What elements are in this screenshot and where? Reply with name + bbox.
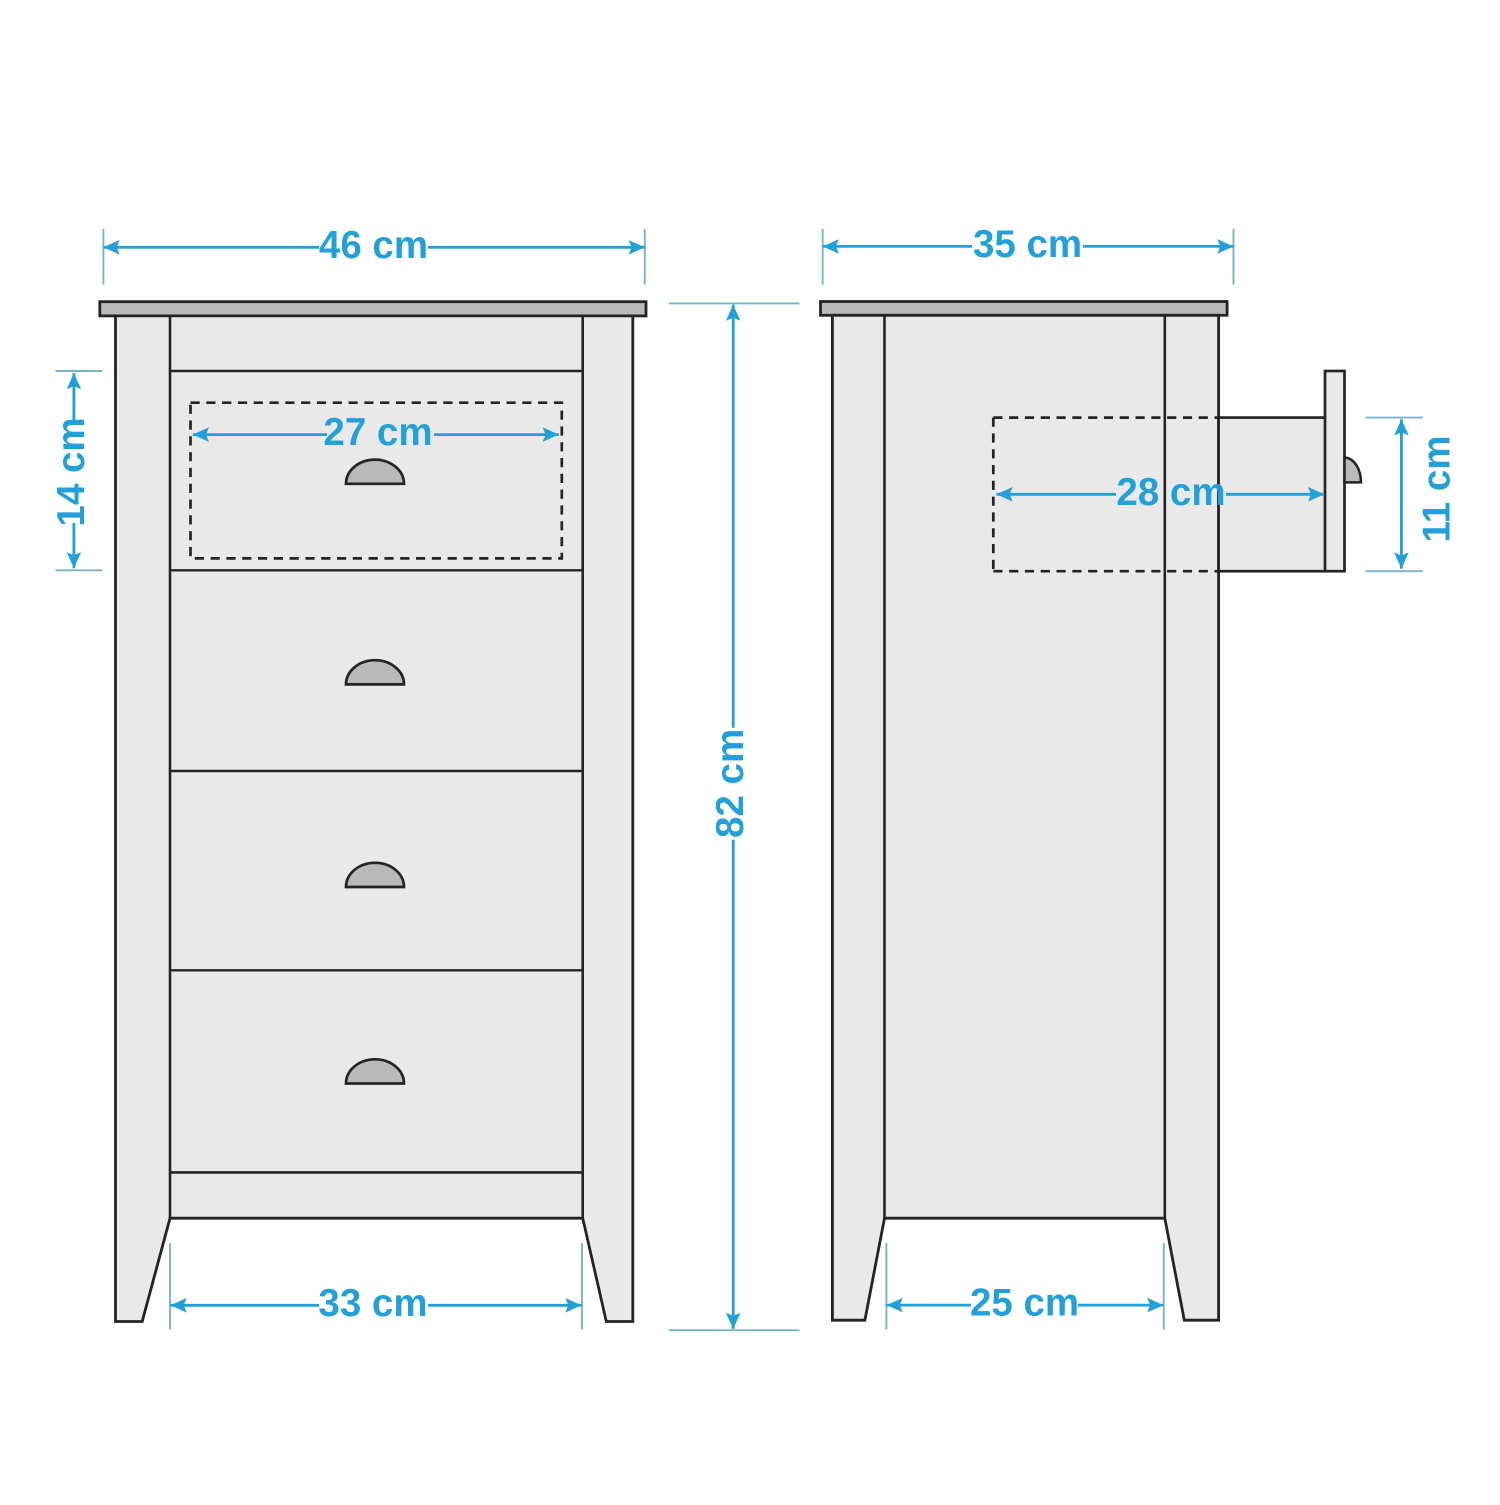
svg-text:27 cm: 27 cm — [323, 411, 432, 454]
svg-text:25 cm: 25 cm — [970, 1282, 1079, 1325]
svg-text:28 cm: 28 cm — [1116, 471, 1225, 514]
svg-text:82 cm: 82 cm — [709, 729, 752, 838]
svg-text:33 cm: 33 cm — [318, 1282, 427, 1325]
svg-text:35 cm: 35 cm — [973, 223, 1082, 266]
svg-text:11 cm: 11 cm — [1416, 435, 1459, 542]
svg-text:46 cm: 46 cm — [319, 224, 428, 267]
svg-text:14 cm: 14 cm — [50, 417, 93, 526]
